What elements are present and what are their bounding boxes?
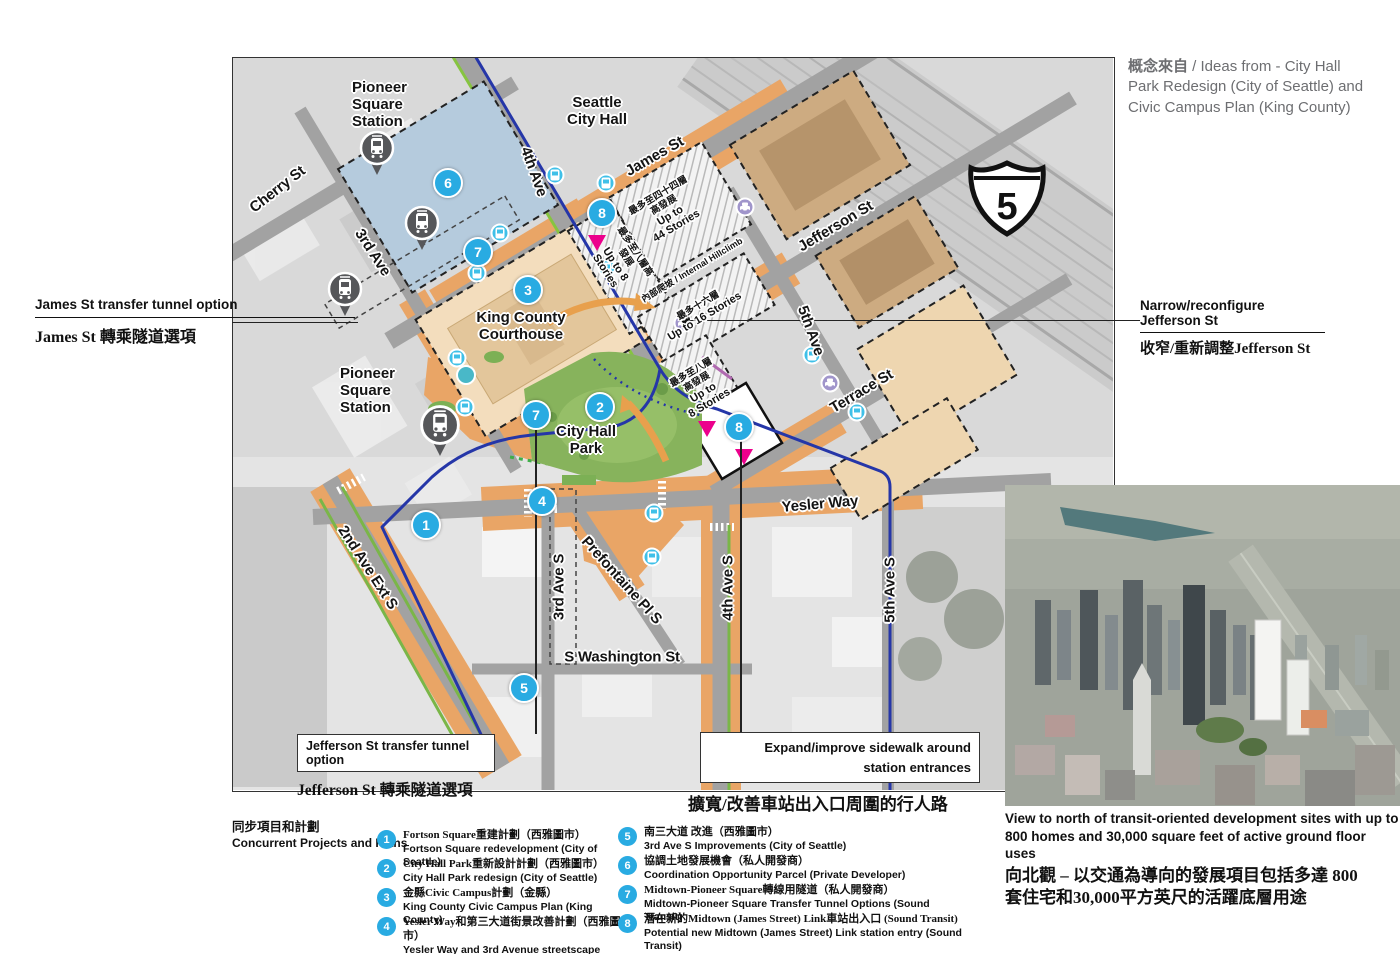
legend-item-1-zh: Fortson Square重建計劃（西雅圖市） xyxy=(403,829,618,843)
callout-narrow-jefferson-zh: 收窄/重新調整Jefferson St xyxy=(1140,337,1325,358)
callout-expand-sidewalk-zh: 擴寬/改善車站出入口周圍的行人路 xyxy=(688,790,980,815)
callout-james-tunnel-zh: James St 轉乘隧道選項 xyxy=(35,323,355,347)
map-badge-8-south: 8 xyxy=(724,412,754,442)
map-badge-3: 3 xyxy=(513,275,543,305)
street-label-4th-ave-s: 4th Ave S xyxy=(721,555,738,620)
legend-badge-3: 3 xyxy=(377,888,396,907)
inset-caption-zh: 向北觀 – 以交通為導向的發展項目包括多達 800 套住宅和30,000平方英尺… xyxy=(1005,865,1400,909)
legend-item-4-en: Yesler Way and 3rd Avenue streetscape im… xyxy=(403,944,628,954)
callout-jefferson-tunnel: Jefferson St transfer tunnel option Jeff… xyxy=(297,734,495,800)
legend-item-2-en: City Hall Park redesign (City of Seattle… xyxy=(403,872,618,885)
label-pioneer-square-station-south: Pioneer Square Station xyxy=(340,366,395,416)
map-badge-1: 1 xyxy=(411,510,441,540)
label-king-county-courthouse: King County Courthouse xyxy=(476,310,565,344)
map-badge-7-north: 7 xyxy=(463,237,493,267)
legend-item-8-zh: 潛在新的Midtown (James Street) Link車站出入口 (So… xyxy=(644,913,974,927)
callout-expand-sidewalk-en: Expand/improve sidewalk around station e… xyxy=(700,732,980,783)
map-badge-5: 5 xyxy=(509,673,539,703)
inset-caption-en: View to north of transit-oriented develo… xyxy=(1005,810,1400,863)
legend-badge-1: 1 xyxy=(377,830,396,849)
street-label-5th-ave-s: 5th Ave S xyxy=(883,557,900,622)
aerial-photo-inset xyxy=(1005,485,1400,806)
map-badge-4: 4 xyxy=(527,486,557,516)
map-badge-6: 6 xyxy=(433,168,463,198)
inset-caption: View to north of transit-oriented develo… xyxy=(1005,810,1400,909)
legend-badge-4: 4 xyxy=(377,917,396,936)
map-badge-7-south: 7 xyxy=(521,400,551,430)
legend-badge-7: 7 xyxy=(618,885,637,904)
callout-james-tunnel: James St transfer tunnel option James St… xyxy=(35,297,355,347)
legend-item-5-zh: 南三大道 改進（西雅圖市） xyxy=(644,826,944,840)
legend-badge-2: 2 xyxy=(377,859,396,878)
label-seattle-city-hall: Seattle City Hall xyxy=(567,95,627,129)
source-note: 概念來自 / Ideas from - City Hall Park Redes… xyxy=(1128,57,1368,118)
callout-jefferson-tunnel-zh: Jefferson St 轉乘隧道選項 xyxy=(297,778,495,800)
source-note-zh: 概念來自 xyxy=(1128,59,1188,75)
legend-badge-6: 6 xyxy=(618,856,637,875)
legend-item-2-zh: City Hall Park重新設計計劃（西雅圖市） xyxy=(403,858,618,872)
label-city-hall-park: City Hall Park xyxy=(556,424,616,458)
map-badge-2: 2 xyxy=(585,392,615,422)
legend-item-7-zh: Midtown-Pioneer Square轉線用隧道（私人開發商） xyxy=(644,884,964,898)
narrow-jefferson-leader-line xyxy=(687,320,1140,321)
street-label-3rd-ave-s: 3rd Ave S xyxy=(552,554,569,620)
legend-item-4-zh: Yesler Way和第三大道街景改善計劃（西雅圖市） xyxy=(403,916,628,944)
legend-badge-8: 8 xyxy=(618,914,637,933)
callout-narrow-jefferson-en: Narrow/reconfigure Jefferson St xyxy=(1140,298,1325,333)
label-pioneer-square-station-north: Pioneer Square Station xyxy=(352,80,407,130)
legend-item-3-zh: 金縣Civic Campus計劃（金縣） xyxy=(403,887,618,901)
callout-expand-sidewalk: Expand/improve sidewalk around station e… xyxy=(700,732,980,815)
aerial-basemap: 5 xyxy=(232,57,1113,790)
legend-badge-5: 5 xyxy=(618,827,637,846)
legend-item-8-en: Potential new Midtown (James Street) Lin… xyxy=(644,927,974,953)
callout-james-tunnel-en: James St transfer tunnel option xyxy=(35,297,355,318)
legend-item-6-zh: 協調土地發展機會（私人開發商） xyxy=(644,855,944,869)
map-badge-8-north: 8 xyxy=(587,198,617,228)
interstate-number: 5 xyxy=(996,186,1017,228)
callout-jefferson-tunnel-en: Jefferson St transfer tunnel option xyxy=(297,734,495,772)
callout-narrow-jefferson: Narrow/reconfigure Jefferson St 收窄/重新調整J… xyxy=(1140,298,1325,358)
street-label-s-washington: S Washington St xyxy=(564,650,680,667)
plan-infographic: 5 Cherry St 3rd Ave 4th Ave James St Jef… xyxy=(0,0,1400,954)
expand-sidewalk-leader-line xyxy=(740,440,742,733)
legend-item-5-en: 3rd Ave S Improvements (City of Seattle) xyxy=(644,840,944,853)
legend-item-6-en: Coordination Opportunity Parcel (Private… xyxy=(644,869,944,882)
